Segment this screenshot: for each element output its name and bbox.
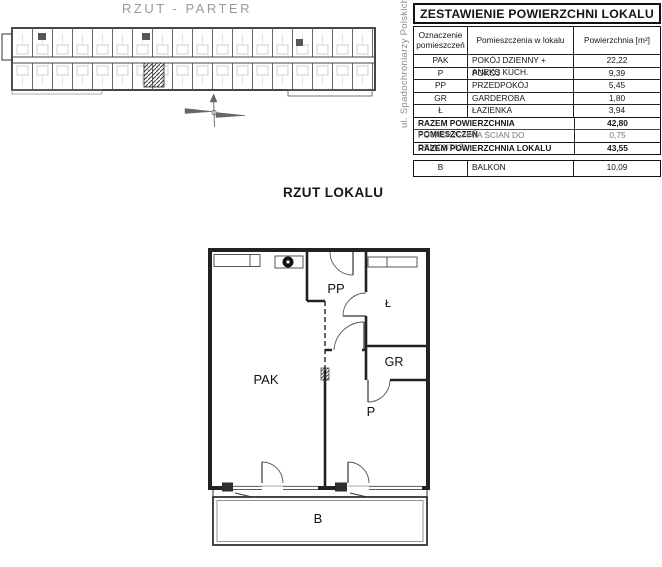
area-summary-table: ZESTAWIENIE POWIERZCHNI LOKALU Oznaczeni… [413, 3, 661, 177]
building-floor-plan [0, 20, 400, 138]
north-compass-icon [185, 94, 245, 127]
summary-label: RAZEM POWIERZCHNIA LOKALU [414, 143, 575, 155]
col-header-area: Powierzchnia [m²] [574, 27, 660, 54]
table-header-row: Oznaczenie pomieszczeń Pomieszczenia w l… [414, 27, 660, 54]
balcony-table: B BALKON 10,09 [413, 160, 661, 177]
table-row-pp: PP PRZEDPOKÓJ 5,45 [414, 79, 660, 92]
room-label-b: B [314, 511, 323, 526]
room-area: 1,80 [574, 93, 660, 105]
room-name: POKÓJ DZIENNY + ANEKS KUCH. [468, 55, 574, 67]
table-row-balcony: B BALKON 10,09 [414, 161, 660, 176]
building-units [12, 28, 375, 90]
room-label-pak: PAK [253, 372, 278, 387]
bathroom-door [343, 293, 366, 316]
door-jambs [222, 368, 347, 492]
room-name: PRZEDPOKÓJ [468, 80, 574, 92]
room-code: P [414, 68, 468, 80]
room-name: BALKON [468, 161, 574, 176]
room-label-pp: PP [327, 281, 344, 296]
col-header-code: Oznaczenie pomieszczeń [414, 27, 468, 54]
site-plan-title: RZUT - PARTER [103, 1, 271, 16]
table-row-p: P POKÓJ 9,39 [414, 67, 660, 80]
summary-label: RAZEM POWIERZCHNIA POMIESZCZEŃ [414, 118, 575, 130]
table-row-lazienka: Ł ŁAZIENKA 3,94 [414, 104, 660, 117]
apartment-plan-title: RZUT LOKALU [283, 185, 383, 200]
pak-balcony-door [235, 462, 283, 497]
room-area: 10,09 [574, 161, 660, 176]
summary-area: 42,80 [575, 118, 660, 130]
summary-area: 43,55 [575, 143, 660, 155]
p-balcony-door [348, 462, 369, 497]
room-area: 3,94 [574, 105, 660, 117]
summary-row-total-unit: RAZEM POWIERZCHNIA LOKALU 43,55 [414, 142, 660, 155]
room-code: Ł [414, 105, 468, 117]
room-code: PP [414, 80, 468, 92]
room-area: 9,39 [574, 68, 660, 80]
table-row-gr: GR GARDEROBA 1,80 [414, 92, 660, 105]
document-page: RZUT - PARTER [0, 0, 662, 567]
room-label-p: P [367, 404, 376, 419]
room-area: 5,45 [574, 80, 660, 92]
summary-label: POWIERZCHNIA ŚCIAN DO DEMONTAŻU [414, 130, 575, 142]
table-title: ZESTAWIENIE POWIERZCHNI LOKALU [413, 3, 661, 24]
room-code: PAK [414, 55, 468, 67]
street-label: ul. Spadochroniarzy Polskich [399, 0, 410, 128]
room-code: GR [414, 93, 468, 105]
outer-walls [208, 248, 430, 490]
fixture-symbol [283, 257, 294, 268]
summary-area: 0,75 [575, 130, 660, 142]
room-label-gr: GR [385, 355, 404, 369]
entrance-door [330, 252, 353, 275]
wardrobe-door [368, 380, 390, 402]
summary-row-total-rooms: RAZEM POWIERZCHNIA POMIESZCZEŃ 42,80 [414, 117, 660, 130]
table-body: Oznaczenie pomieszczeń Pomieszczenia w l… [413, 26, 661, 155]
room-code: B [414, 161, 468, 176]
room-p-door [334, 322, 364, 350]
bathroom-fixtures [368, 257, 417, 267]
highlighted-unit [144, 63, 164, 87]
summary-row-demolition-walls: POWIERZCHNIA ŚCIAN DO DEMONTAŻU 0,75 [414, 129, 660, 142]
table-row-pak: PAK POKÓJ DZIENNY + ANEKS KUCH. 22,22 [414, 54, 660, 67]
apartment-floor-plan: PAK PP Ł GR P B [190, 240, 450, 562]
room-area: 22,22 [574, 55, 660, 67]
room-name: POKÓJ [468, 68, 574, 80]
room-name: GARDEROBA [468, 93, 574, 105]
room-label-lazienka: Ł [385, 298, 391, 310]
interior-walls [307, 252, 428, 488]
col-header-name: Pomieszczenia w lokalu [468, 27, 574, 54]
room-name: ŁAZIENKA [468, 105, 574, 117]
